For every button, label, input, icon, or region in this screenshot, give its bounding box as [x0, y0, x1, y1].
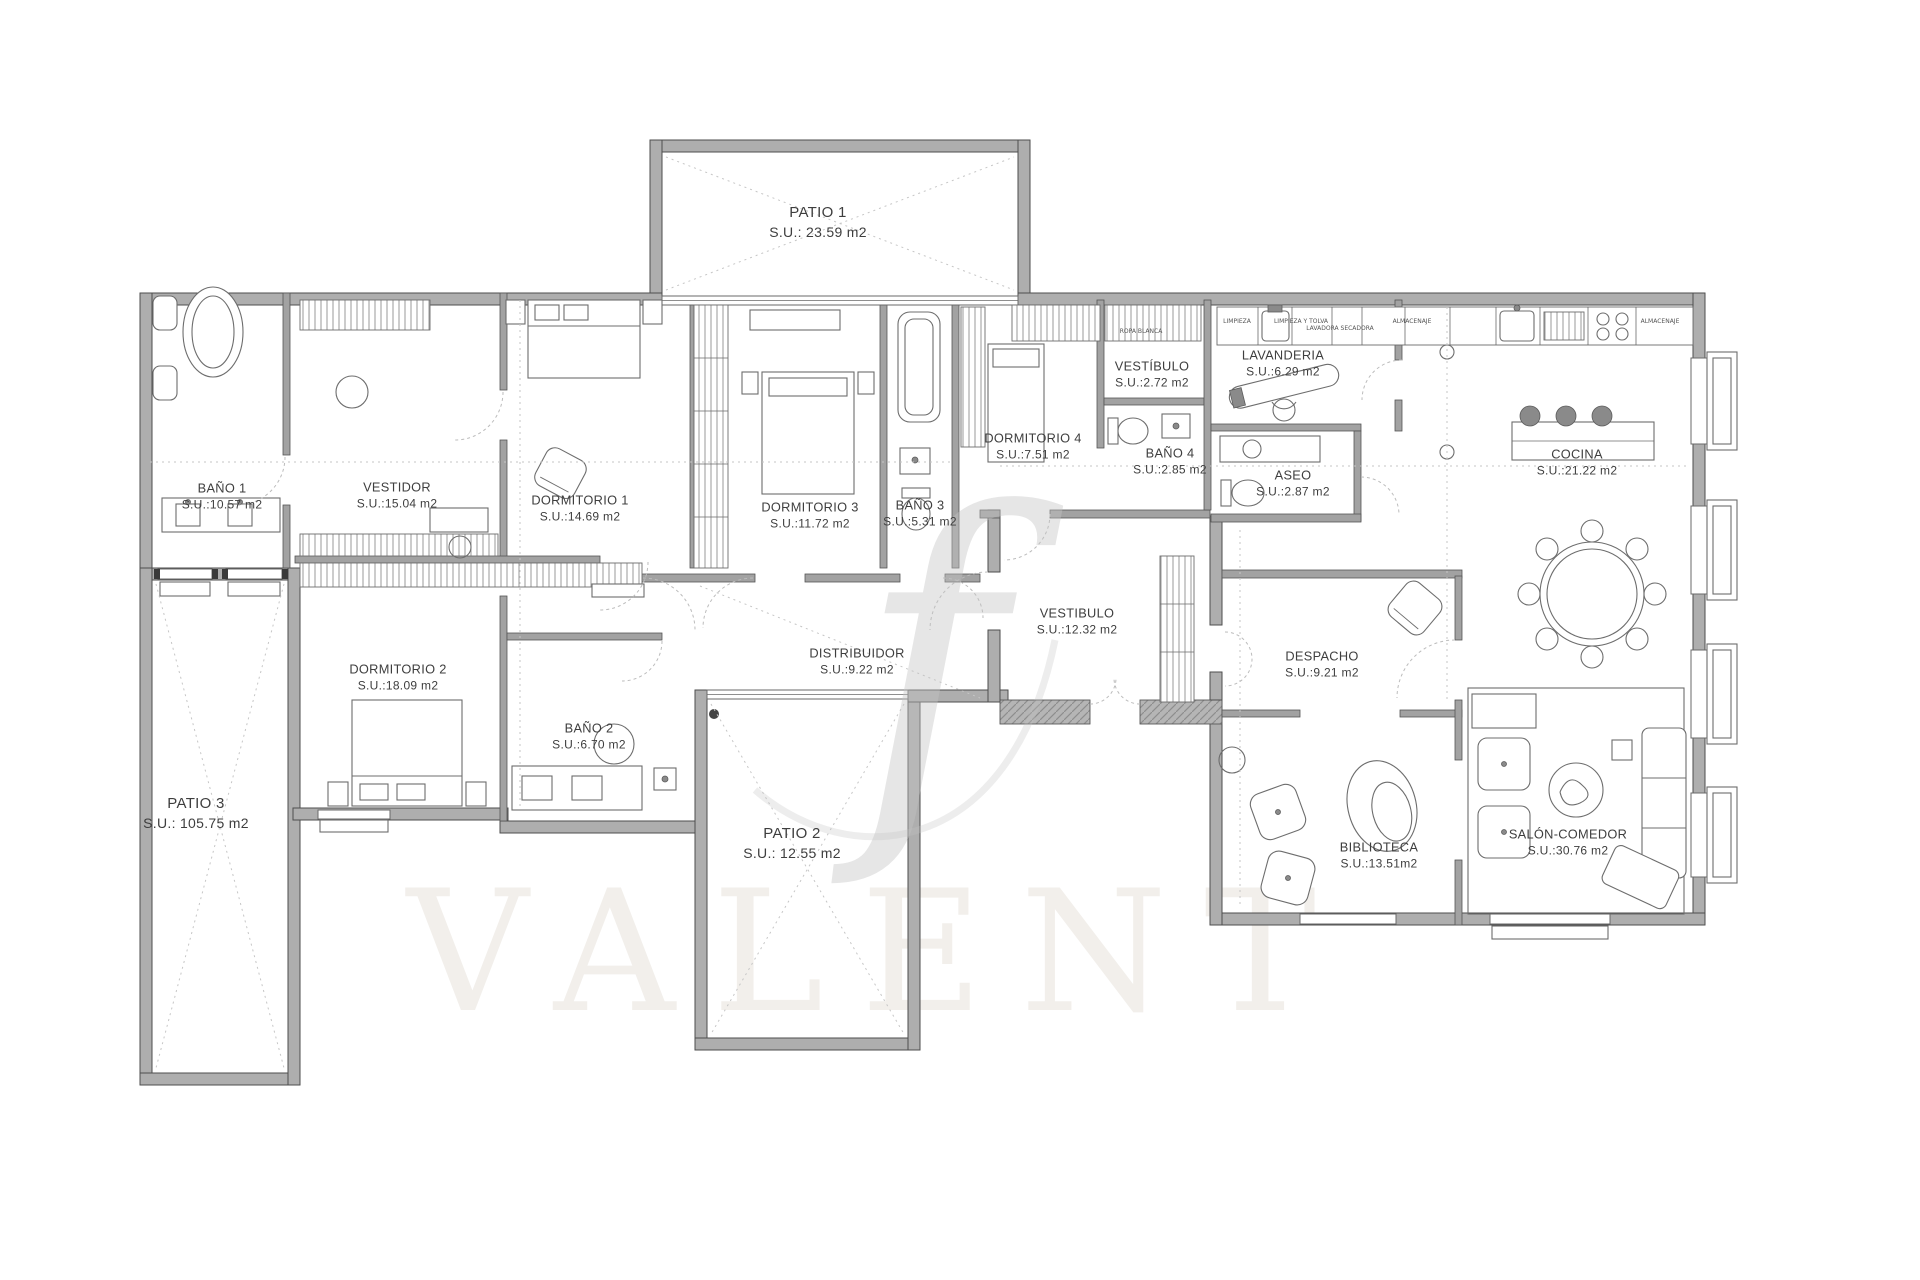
room-label-patio-1: PATIO 1S.U.: 23.59 m2	[769, 203, 867, 241]
room-label-salon-comedor: SALÓN-COMEDORS.U.:30.76 m2	[1509, 827, 1627, 860]
floor-plan-canvas: VALENT	[0, 0, 1920, 1280]
room-label-bano-2: BAÑO 2S.U.:6.70 m2	[552, 721, 626, 754]
room-label-dormitorio-1: DORMITORIO 1S.U.:14.69 m2	[531, 493, 628, 526]
room-label-aseo: ASEOS.U.:2.87 m2	[1256, 468, 1330, 501]
room-label-patio-2: PATIO 2S.U.: 12.55 m2	[743, 824, 841, 862]
room-label-dormitorio-4: DORMITORIO 4S.U.:7.51 m2	[984, 431, 1081, 464]
room-label-bano-4: BAÑO 4S.U.:2.85 m2	[1133, 446, 1207, 479]
room-label-biblioteca: BIBLIOTECAS.U.:13.51m2	[1340, 840, 1418, 873]
room-label-patio-3: PATIO 3S.U.: 105.75 m2	[143, 794, 249, 832]
room-label-dormitorio-3: DORMITORIO 3S.U.:11.72 m2	[761, 500, 858, 533]
room-label-vestibulo-dorm: VESTÍBULOS.U.:2.72 m2	[1115, 359, 1190, 392]
room-label-dormitorio-2: DORMITORIO 2S.U.:18.09 m2	[349, 662, 446, 695]
room-label-bano-3: BAÑO 3S.U.:5.31 m2	[883, 498, 957, 531]
room-labels-layer: PATIO 1S.U.: 23.59 m2 BAÑO 1S.U.:10.57 m…	[0, 0, 1920, 1280]
room-label-vestidor: VESTIDORS.U.:15.04 m2	[357, 480, 438, 513]
room-label-despacho: DESPACHOS.U.:9.21 m2	[1285, 649, 1359, 682]
room-label-vestibulo: VESTIBULOS.U.:12.32 m2	[1037, 606, 1118, 639]
room-label-distribuidor: DISTRIBUIDORS.U.:9.22 m2	[809, 646, 904, 679]
room-label-lavanderia: LAVANDERIAS.U.:6.29 m2	[1242, 348, 1324, 381]
room-label-bano-1: BAÑO 1S.U.:10.57 m2	[182, 481, 263, 514]
room-label-cocina: COCINAS.U.:21.22 m2	[1537, 447, 1618, 480]
